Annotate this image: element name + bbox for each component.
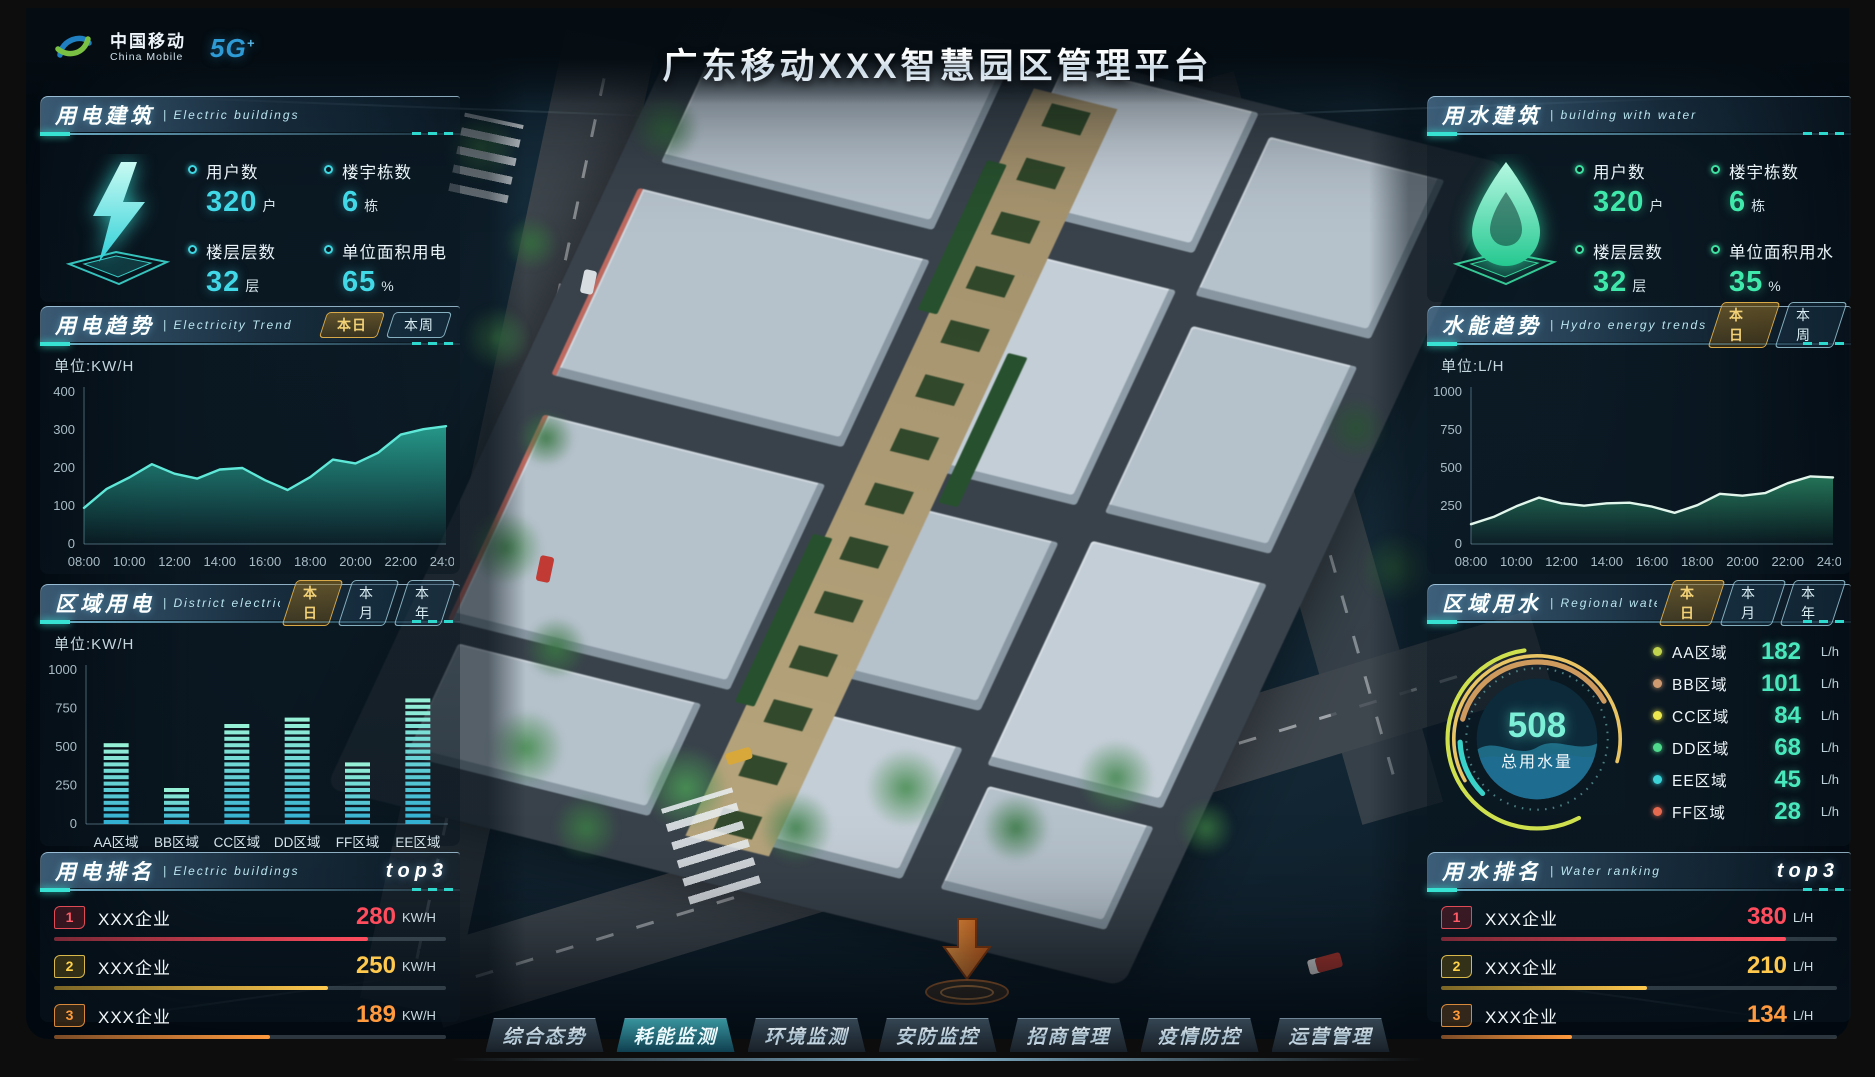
- svg-text:14:00: 14:00: [203, 554, 236, 569]
- total-water-gauge: 508 总用水量: [1433, 635, 1641, 843]
- tab-month[interactable]: 本月: [338, 580, 400, 626]
- nav-item-energy-monitor[interactable]: 耗能监测: [617, 1018, 735, 1052]
- ranking-row-2: 2 XXX企业 250 KW/H: [54, 952, 446, 990]
- legend-row: EE区域45L/h: [1653, 767, 1839, 792]
- tab-week[interactable]: 本周: [386, 312, 452, 338]
- svg-text:FF区域: FF区域: [336, 835, 380, 850]
- panel-subtitle: | Electric buildings: [163, 108, 300, 122]
- rank-badge: 1: [54, 906, 85, 929]
- hydro-trend-chart: 0250500750100008:0010:0012:0014:0016:001…: [1427, 378, 1841, 574]
- svg-text:20:00: 20:00: [339, 554, 372, 569]
- tab-today[interactable]: 本日: [1708, 302, 1780, 348]
- svg-text:20:00: 20:00: [1726, 554, 1759, 569]
- bottom-nav: 综合态势 耗能监测 环境监测 安防监控 招商管理 疫情防控 运营管理: [486, 1018, 1390, 1052]
- nav-item-investment[interactable]: 招商管理: [1010, 1018, 1128, 1052]
- ranking-row-1: 1 XXX企业 280 KW/H: [54, 903, 446, 941]
- nav-base-line: [450, 1058, 1425, 1061]
- regional-water-panel: 区域用水 | Regional water 本日 本月 本年: [1427, 584, 1851, 846]
- legend-dot-icon: [1653, 647, 1662, 656]
- nav-item-security[interactable]: 安防监控: [879, 1018, 997, 1052]
- svg-text:CC区域: CC区域: [214, 835, 260, 850]
- legend-dot-icon: [1653, 775, 1662, 784]
- stat-bullet-icon: [1711, 245, 1720, 254]
- svg-text:16:00: 16:00: [1636, 554, 1669, 569]
- ranking-row-3: 3 XXX企业 134 L/H: [1441, 1001, 1837, 1039]
- unit-label: 单位:KW/H: [40, 623, 460, 654]
- legend-row: CC区域84L/h: [1653, 703, 1839, 728]
- progress-bar: [1441, 986, 1837, 990]
- svg-text:AA区域: AA区域: [94, 835, 139, 850]
- panel-subtitle: | Regional water: [1550, 596, 1657, 610]
- header-underline: [40, 621, 460, 623]
- svg-text:500: 500: [55, 739, 77, 754]
- total-water-value: 508: [1508, 706, 1566, 746]
- water-drop-icon: [1437, 149, 1575, 299]
- header-underline: [1427, 133, 1851, 135]
- legend-dot-icon: [1653, 711, 1662, 720]
- stat-buildings: 楼宇栋数 6栋: [1711, 159, 1845, 219]
- svg-text:0: 0: [1455, 536, 1462, 551]
- svg-text:300: 300: [53, 422, 75, 437]
- top-header-bar: 中国移动 China Mobile 5G+ 广东移动XXX智慧园区管理平台: [26, 8, 1849, 104]
- stat-unit-area: 单位面积用电 65%: [324, 239, 454, 299]
- nav-item-operations[interactable]: 运营管理: [1272, 1018, 1390, 1052]
- svg-text:08:00: 08:00: [68, 554, 101, 569]
- stat-bullet-icon: [188, 165, 197, 174]
- nav-item-epidemic[interactable]: 疫情防控: [1141, 1018, 1259, 1052]
- svg-text:100: 100: [53, 498, 75, 513]
- stat-users: 用户数 320户: [188, 159, 306, 219]
- stat-users: 用户数 320户: [1575, 159, 1693, 219]
- header-underline: [40, 133, 460, 135]
- panel-title: 水能趋势: [1442, 310, 1542, 340]
- electricity-trend-chart: 010020030040008:0010:0012:0014:0016:0018…: [40, 378, 454, 574]
- svg-text:200: 200: [53, 460, 75, 475]
- legend-dot-icon: [1653, 679, 1662, 688]
- ranking-row-1: 1 XXX企业 380 L/H: [1441, 903, 1837, 941]
- stat-floors: 楼层层数 32层: [188, 239, 306, 299]
- panel-header: 区域用水 | Regional water 本日 本月 本年: [1427, 584, 1851, 620]
- panel-title: 区域用水: [1442, 588, 1542, 618]
- ranking-row-3: 3 XXX企业 189 KW/H: [54, 1001, 446, 1039]
- panel-title: 区域用电: [55, 588, 155, 618]
- progress-bar: [1441, 937, 1837, 941]
- header-underline: [40, 343, 460, 345]
- rank-badge: 2: [54, 955, 85, 978]
- ranking-row-2: 2 XXX企业 210 L/H: [1441, 952, 1837, 990]
- panel-subtitle: | District electricity: [163, 596, 280, 610]
- electricity-trend-panel: 用电趋势 | Electricity Trend 本日 本周 单位:KW/H 0…: [40, 306, 460, 574]
- stat-bullet-icon: [1575, 245, 1584, 254]
- svg-text:12:00: 12:00: [1545, 554, 1578, 569]
- panel-title: 用水排名: [1442, 856, 1542, 886]
- panel-header: 水能趋势 | Hydro energy trends 本日 本周: [1427, 306, 1851, 342]
- header-underline: [40, 889, 460, 891]
- svg-text:BB区域: BB区域: [154, 835, 199, 850]
- rank-badge: 2: [1441, 955, 1472, 978]
- svg-text:250: 250: [1440, 498, 1462, 513]
- dashboard-canvas: 中国移动 China Mobile 5G+ 广东移动XXX智慧园区管理平台 用电…: [0, 0, 1875, 1077]
- panel-header: 区域用电 | District electricity 本日 本月 本年: [40, 584, 460, 620]
- svg-text:DD区域: DD区域: [274, 835, 321, 850]
- svg-text:22:00: 22:00: [1771, 554, 1804, 569]
- panel-subtitle: | Electric buildings: [163, 864, 300, 878]
- unit-label: 单位:KW/H: [40, 345, 460, 376]
- header-underline: [1427, 343, 1851, 345]
- stat-bullet-icon: [188, 245, 197, 254]
- total-water-label: 总用水量: [1501, 748, 1573, 772]
- svg-text:12:00: 12:00: [158, 554, 191, 569]
- svg-text:24:00: 24:00: [1817, 554, 1841, 569]
- water-ranking-panel: 用水排名 | Water ranking top3 1 XXX企业 380 L/…: [1427, 852, 1851, 1022]
- svg-text:08:00: 08:00: [1455, 554, 1488, 569]
- legend-row: FF区域28L/h: [1653, 799, 1839, 824]
- rank-badge: 3: [1441, 1004, 1472, 1027]
- panel-subtitle: | Hydro energy trends: [1550, 318, 1706, 332]
- svg-text:250: 250: [55, 778, 77, 793]
- panel-subtitle: | Water ranking: [1550, 864, 1661, 878]
- water-building-panel: 用水建筑 | building with water 用户数 3: [1427, 96, 1851, 302]
- svg-text:500: 500: [1440, 460, 1462, 475]
- panel-title: 用电排名: [55, 856, 155, 886]
- svg-text:16:00: 16:00: [249, 554, 282, 569]
- page-title: 广东移动XXX智慧园区管理平台: [26, 38, 1849, 89]
- legend-row: AA区域182L/h: [1653, 639, 1839, 664]
- legend-row: DD区域68L/h: [1653, 735, 1839, 760]
- panel-header: 用电趋势 | Electricity Trend 本日 本周: [40, 306, 460, 342]
- panel-header: 用水排名 | Water ranking top3: [1427, 852, 1851, 888]
- svg-text:10:00: 10:00: [1500, 554, 1533, 569]
- legend-dot-icon: [1653, 743, 1662, 752]
- hydro-trend-panel: 水能趋势 | Hydro energy trends 本日 本周 单位:L/H …: [1427, 306, 1851, 574]
- svg-text:0: 0: [70, 816, 77, 831]
- svg-text:22:00: 22:00: [384, 554, 417, 569]
- stat-bullet-icon: [324, 245, 333, 254]
- stat-floors: 楼层层数 32层: [1575, 239, 1693, 299]
- panel-title: 用电建筑: [55, 100, 155, 130]
- svg-text:1000: 1000: [1433, 384, 1462, 399]
- stat-bullet-icon: [324, 165, 333, 174]
- progress-bar: [54, 986, 446, 990]
- svg-text:10:00: 10:00: [113, 554, 146, 569]
- header-underline: [1427, 621, 1851, 623]
- svg-text:14:00: 14:00: [1590, 554, 1623, 569]
- water-legend: AA区域182L/h BB区域101L/h CC区域84L/h DD区域68L/…: [1641, 635, 1843, 843]
- pin-arrow-icon: [922, 913, 1012, 983]
- electric-ranking-panel: 用电排名 | Electric buildings top3 1 XXX企业 2…: [40, 852, 460, 1022]
- tab-today[interactable]: 本日: [319, 312, 385, 338]
- svg-text:750: 750: [1440, 422, 1462, 437]
- nav-item-overview[interactable]: 综合态势: [486, 1018, 604, 1052]
- panel-header: 用水建筑 | building with water: [1427, 96, 1851, 132]
- stat-bullet-icon: [1711, 165, 1720, 174]
- progress-bar: [54, 937, 446, 941]
- nav-item-environment[interactable]: 环境监测: [748, 1018, 866, 1052]
- svg-text:750: 750: [55, 701, 77, 716]
- legend-row: BB区域101L/h: [1653, 671, 1839, 696]
- stat-buildings: 楼宇栋数 6栋: [324, 159, 454, 219]
- district-electricity-panel: 区域用电 | District electricity 本日 本月 本年 单位:…: [40, 584, 460, 846]
- panel-title: 用水建筑: [1442, 100, 1542, 130]
- rank-badge: 1: [1441, 906, 1472, 929]
- svg-text:18:00: 18:00: [294, 554, 327, 569]
- rank-badge: 3: [54, 1004, 85, 1027]
- progress-bar: [1441, 1035, 1837, 1039]
- lightning-icon: [50, 149, 188, 299]
- svg-text:24:00: 24:00: [430, 554, 454, 569]
- panel-header: 用电排名 | Electric buildings top3: [40, 852, 460, 888]
- tab-month[interactable]: 本月: [1719, 580, 1786, 626]
- top3-label: top3: [1777, 860, 1839, 883]
- svg-text:EE区域: EE区域: [395, 835, 440, 850]
- stat-bullet-icon: [1575, 165, 1584, 174]
- unit-label: 单位:L/H: [1427, 345, 1851, 376]
- svg-text:1000: 1000: [48, 662, 77, 677]
- progress-bar: [54, 1035, 446, 1039]
- panel-title: 用电趋势: [55, 310, 155, 340]
- svg-text:18:00: 18:00: [1681, 554, 1714, 569]
- legend-dot-icon: [1653, 807, 1662, 816]
- electric-building-panel: 用电建筑 | Electric buildings 用户数 320户: [40, 96, 460, 302]
- tab-today[interactable]: 本日: [282, 580, 344, 626]
- panel-subtitle: | Electricity Trend: [163, 318, 293, 332]
- location-pin: [922, 913, 1012, 1013]
- panel-subtitle: | building with water: [1550, 108, 1697, 122]
- svg-text:0: 0: [68, 536, 75, 551]
- tab-today[interactable]: 本日: [1659, 580, 1726, 626]
- stat-unit-area: 单位面积用水 35%: [1711, 239, 1845, 299]
- top3-label: top3: [386, 860, 448, 883]
- header-underline: [1427, 889, 1851, 891]
- svg-text:400: 400: [53, 384, 75, 399]
- panel-header: 用电建筑 | Electric buildings: [40, 96, 460, 132]
- district-electricity-chart: 02505007501000AA区域BB区域CC区域DD区域FF区域EE区域: [40, 656, 454, 856]
